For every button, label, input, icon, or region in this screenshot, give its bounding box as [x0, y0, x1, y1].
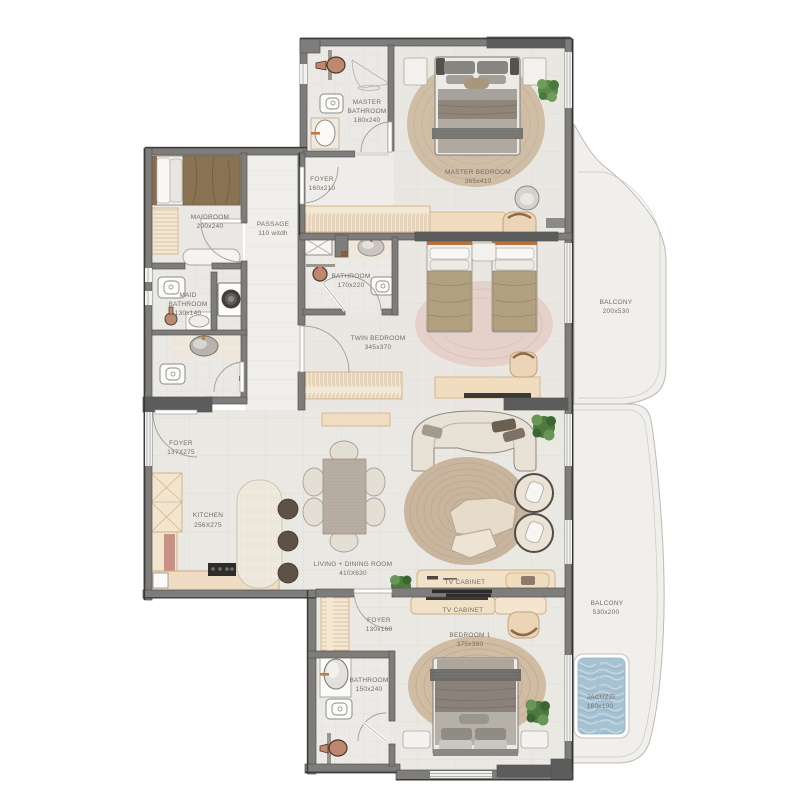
svg-text:180x240: 180x240: [354, 117, 381, 124]
svg-text:375x380: 375x380: [457, 641, 484, 648]
svg-text:130x160: 130x160: [366, 626, 393, 633]
svg-text:MASTER BEDROOM: MASTER BEDROOM: [445, 169, 511, 176]
svg-text:BATHROOM: BATHROOM: [349, 677, 388, 684]
svg-text:256X275: 256X275: [194, 522, 222, 529]
svg-text:MASTER: MASTER: [353, 99, 382, 106]
svg-text:PASSAGE: PASSAGE: [257, 221, 290, 228]
svg-text:160x100: 160x100: [587, 703, 614, 710]
svg-text:FOYER: FOYER: [310, 176, 334, 183]
svg-text:BATHROOM: BATHROOM: [168, 301, 207, 308]
svg-text:LIVING + DINING ROOM: LIVING + DINING ROOM: [314, 561, 393, 568]
svg-text:BALCONY: BALCONY: [600, 299, 633, 306]
svg-text:BALCONY: BALCONY: [591, 600, 624, 607]
svg-text:200x240: 200x240: [197, 223, 224, 230]
svg-text:MAIDROOM: MAIDROOM: [191, 214, 229, 221]
svg-text:FOYER: FOYER: [367, 617, 391, 624]
svg-text:110 witdh: 110 witdh: [258, 230, 288, 237]
svg-text:TV CABINET: TV CABINET: [443, 607, 484, 614]
svg-text:170x220: 170x220: [338, 282, 365, 289]
svg-text:BEDROOM 1: BEDROOM 1: [449, 632, 490, 639]
svg-text:MAID: MAID: [179, 292, 196, 299]
svg-text:530x200: 530x200: [593, 609, 620, 616]
svg-text:410X630: 410X630: [339, 570, 367, 577]
svg-text:137X275: 137X275: [167, 449, 195, 456]
svg-text:FOYER: FOYER: [169, 440, 193, 447]
svg-text:KITCHEN: KITCHEN: [193, 512, 223, 519]
svg-text:BATHROOM: BATHROOM: [331, 273, 370, 280]
svg-text:365x410: 365x410: [465, 178, 492, 185]
svg-text:200x530: 200x530: [603, 308, 630, 315]
svg-text:160x210: 160x210: [309, 185, 336, 192]
svg-text:150x240: 150x240: [356, 686, 383, 693]
svg-text:TWIN BEDROOM: TWIN BEDROOM: [351, 335, 406, 342]
svg-text:JACUZZI: JACUZZI: [587, 694, 615, 701]
svg-text:345x370: 345x370: [365, 344, 392, 351]
svg-text:TV CABINET: TV CABINET: [445, 579, 486, 586]
svg-text:BATHROOM: BATHROOM: [347, 108, 386, 115]
svg-text:130x140: 130x140: [175, 310, 202, 317]
